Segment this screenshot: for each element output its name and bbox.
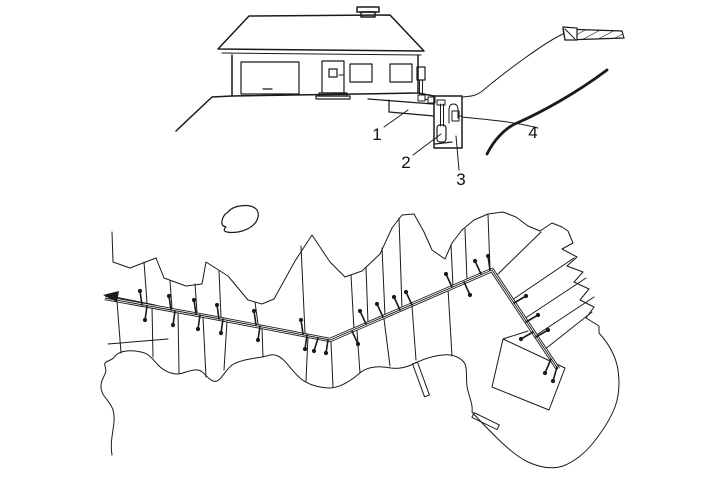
road-surface [563,27,624,40]
service-connection-dot [356,342,360,346]
site-plan [101,206,619,468]
service-connection-dot [167,294,171,298]
service-connection-dot [358,309,362,313]
service-lateral [145,306,147,320]
service-connection-dot [171,323,175,327]
service-connection-dot [138,289,142,293]
service-lateral [301,320,303,334]
house [218,7,425,99]
service-connection-dot [536,313,540,317]
service-connection-dot [196,327,200,331]
service-connection-dot [444,272,448,276]
service-connection-dot [486,254,490,258]
building-lateral-pipe [368,99,434,116]
service-connection-dot [392,295,396,299]
house-drain-pipe [418,80,435,103]
service-connection-dot [375,302,379,306]
service-lateral [173,311,175,325]
entry-door [316,61,350,99]
service-lateral [377,304,383,317]
service-connection-dot [546,328,550,332]
service-connection-dot [473,259,477,263]
service-connection-dot [143,318,147,322]
subdivision-boundary [112,212,599,333]
service-connection-dot [324,351,328,355]
service-lateral [475,261,481,274]
service-lateral [194,300,196,314]
callout-1: 1 [372,125,381,144]
section-view: 1 2 3 4 [176,7,624,189]
grinder-pump [435,125,452,144]
service-connection-dot [252,309,256,313]
service-lateral [464,282,470,295]
service-connection-dot [299,318,303,322]
window [390,64,412,82]
pump-riser [437,100,445,126]
docks [413,362,500,430]
dock [413,362,430,397]
service-connection-dot [551,379,555,383]
window [350,64,372,82]
roof [218,15,424,55]
pressure-main-pipeline [103,270,558,369]
service-lateral [254,311,256,325]
pond [222,206,258,233]
service-lateral [406,292,412,305]
service-connection-dot [519,337,523,341]
figure-canvas: 1 2 3 4 [0,0,720,480]
street-pressure-main [487,70,607,154]
service-lateral [360,311,366,324]
callout-3: 3 [456,170,465,189]
service-connection-dot [468,293,472,297]
pump-chamber [434,96,462,148]
service-lateral [446,274,452,287]
service-connection-dot [219,331,223,335]
service-lateral [545,359,551,373]
service-connection-dot [303,347,307,351]
callout-4: 4 [528,123,537,142]
service-connection-dot [192,298,196,302]
callout-2: 2 [401,153,410,172]
discharge-elbow [449,104,462,123]
service-connection-dot [256,338,260,342]
service-lateral [553,367,557,381]
service-connection-dot [215,303,219,307]
callouts: 1 2 3 4 [372,110,537,189]
service-lateral [394,297,400,310]
service-connection-dot [404,290,408,294]
service-connection-dot [524,294,528,298]
service-connection-dot [543,371,547,375]
garage-door [241,62,299,94]
service-connection-dot [312,349,316,353]
